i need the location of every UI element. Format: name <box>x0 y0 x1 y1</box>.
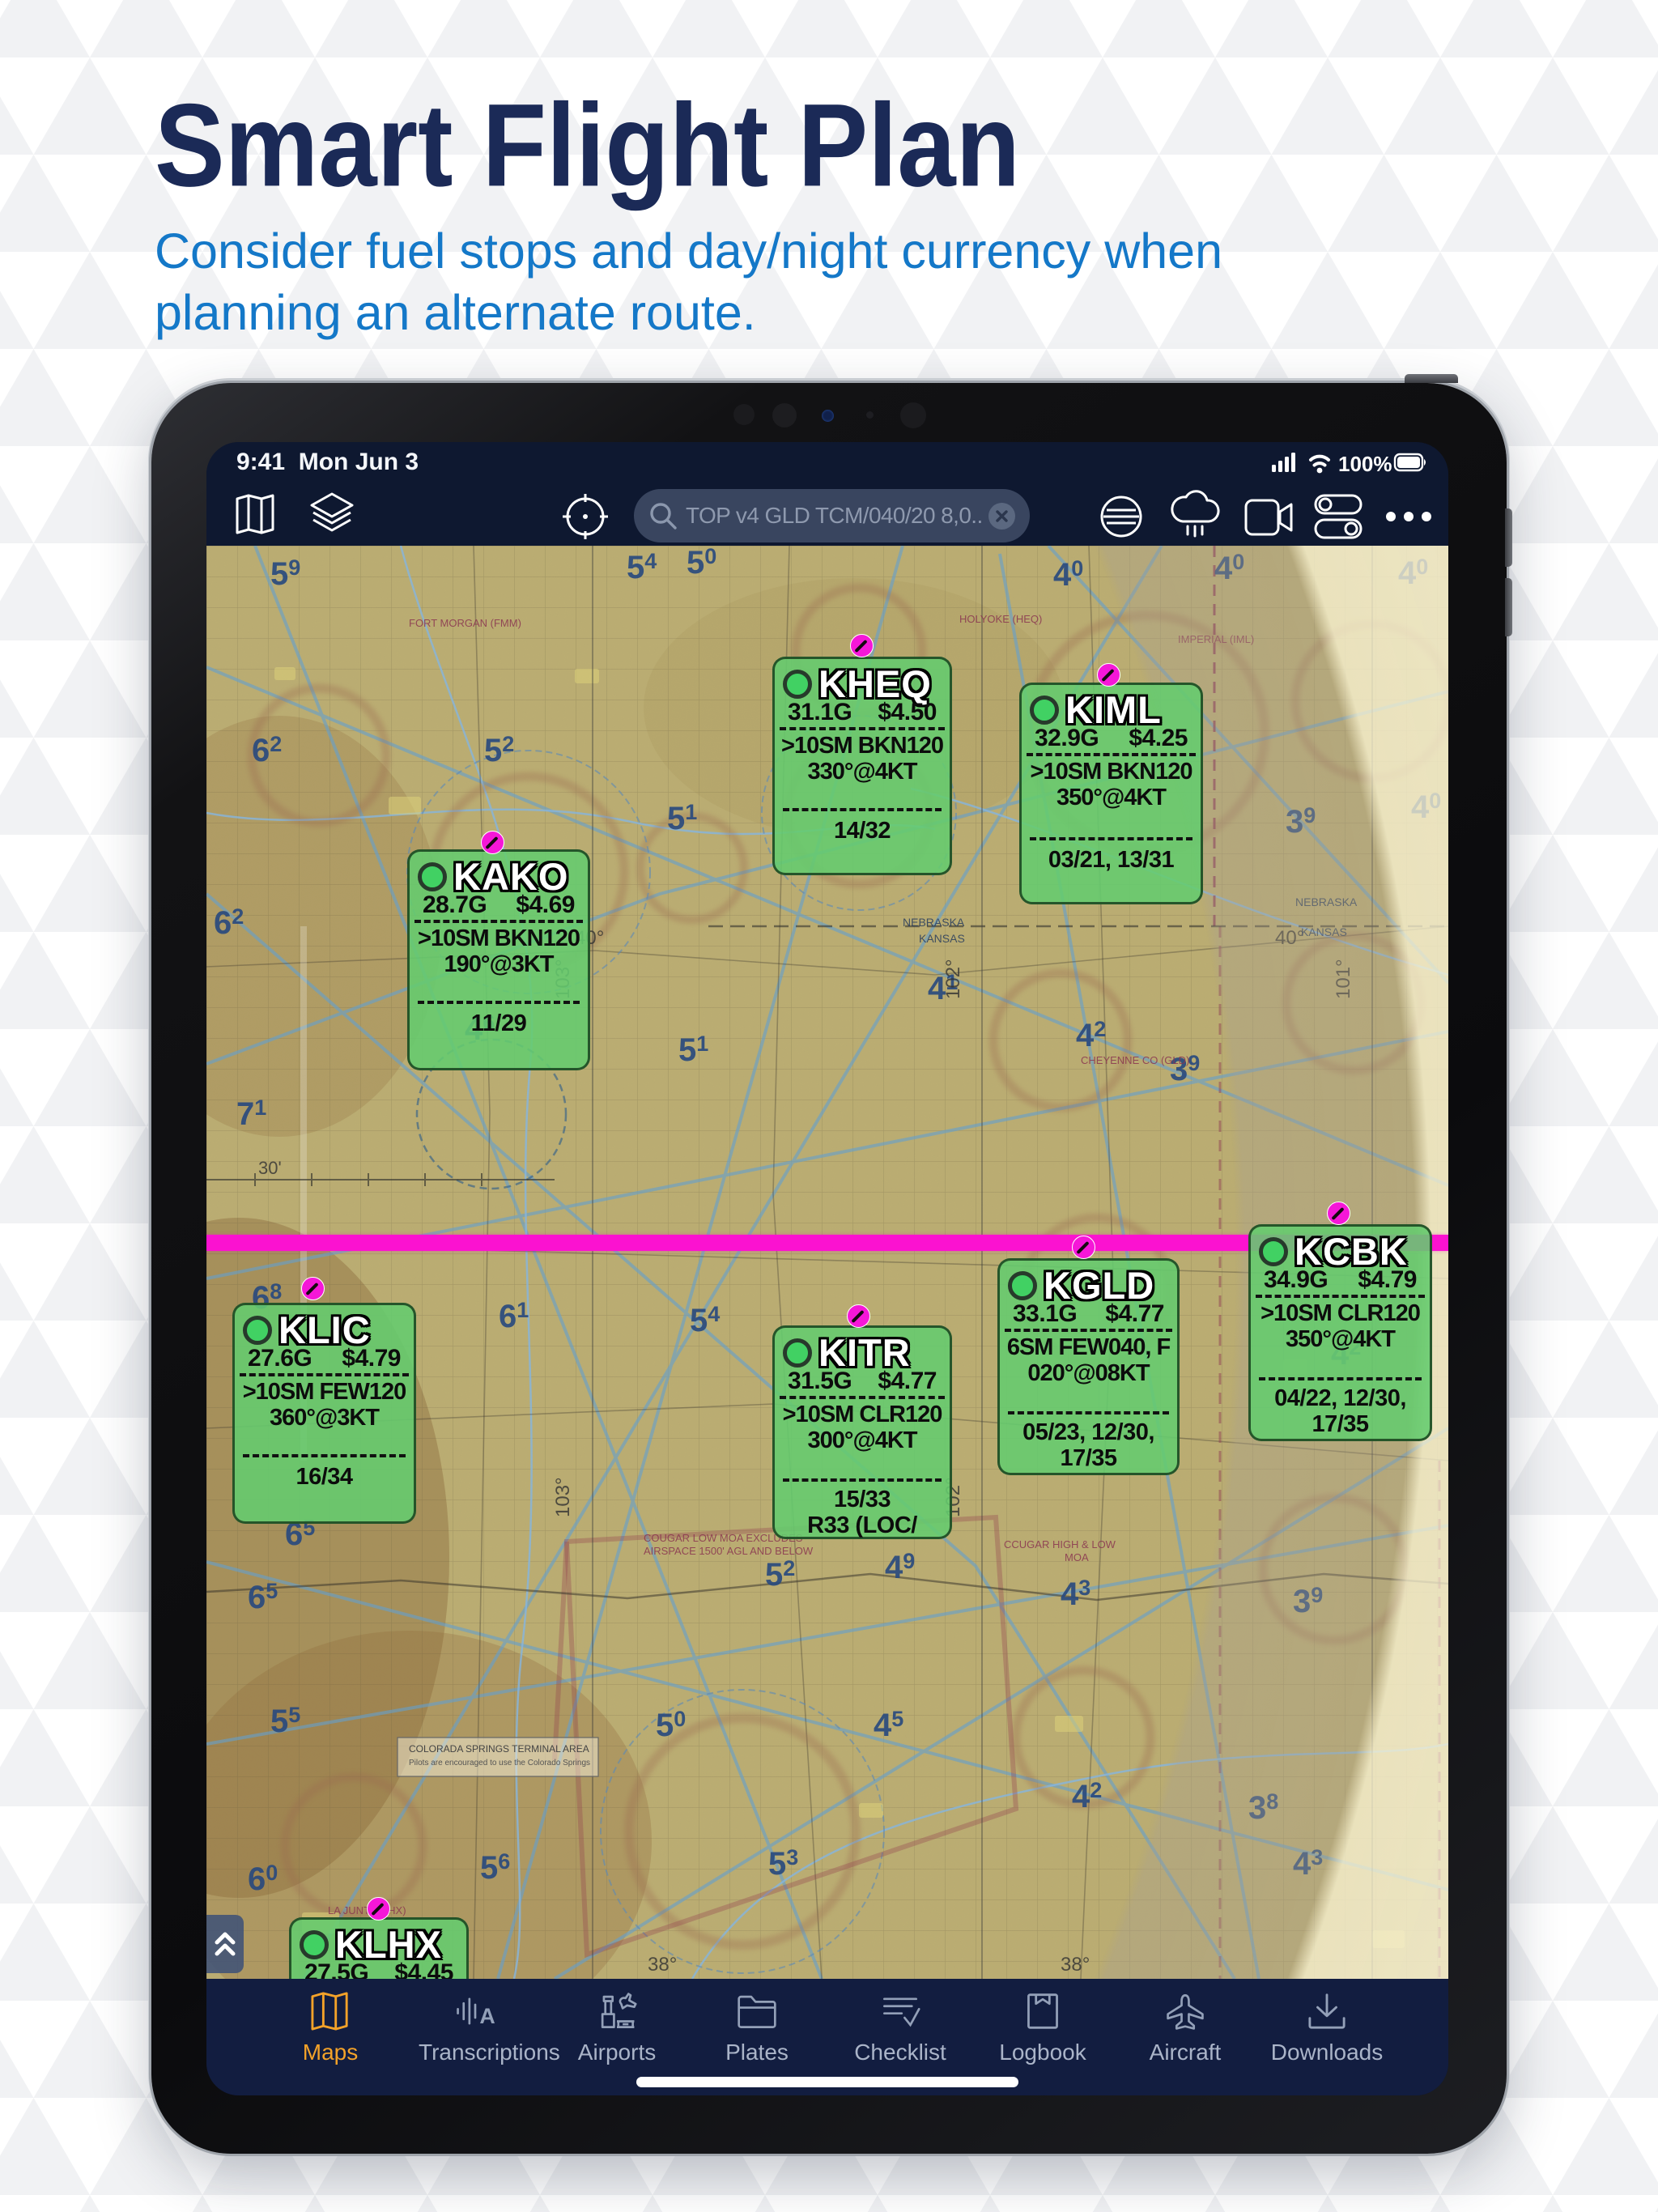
svg-text:A: A <box>479 2004 495 2028</box>
svg-text:100%: 100% <box>1338 452 1392 476</box>
